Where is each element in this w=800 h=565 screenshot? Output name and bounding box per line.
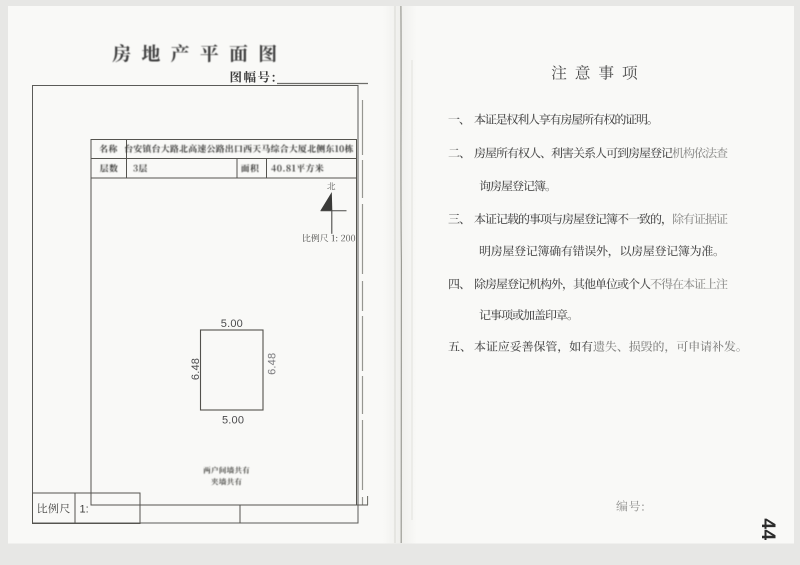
svg-text:6.48: 6.48 <box>190 358 202 380</box>
svg-text:6.48: 6.48 <box>266 353 278 375</box>
svg-text:5.00: 5.00 <box>222 415 244 427</box>
svg-text:1:: 1: <box>80 504 89 516</box>
svg-text:5.00: 5.00 <box>221 318 243 330</box>
svg-text:44: 44 <box>757 518 778 540</box>
